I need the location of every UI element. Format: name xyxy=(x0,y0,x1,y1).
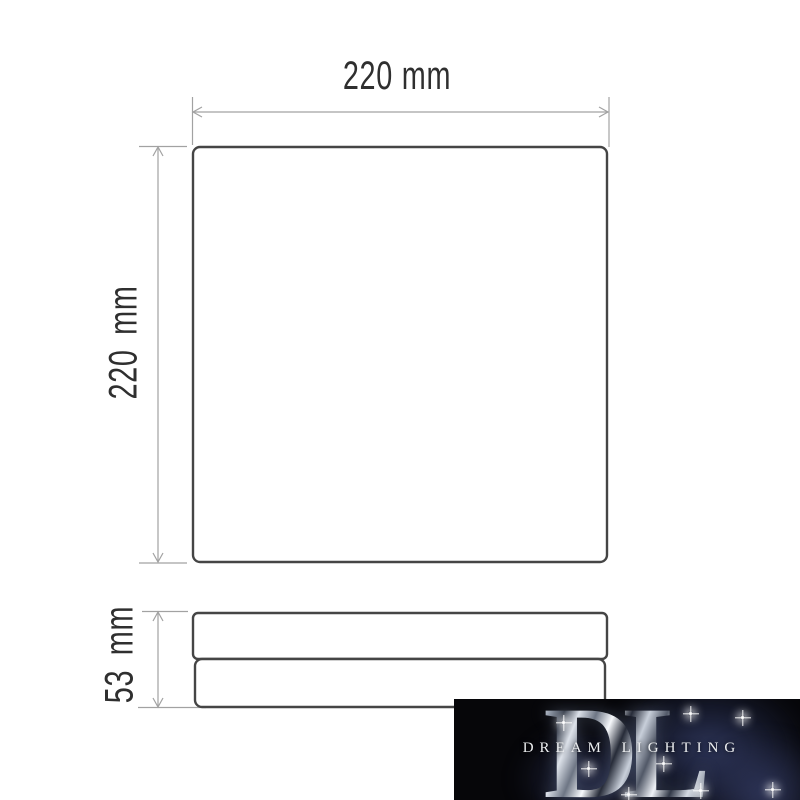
height-dimension-label: 220 mm xyxy=(104,256,145,429)
dream-lighting-logo: DL DREAM LIGHTING xyxy=(454,699,800,800)
sparkle-glint xyxy=(661,761,666,766)
width-dimension-label: 220 mm xyxy=(318,56,476,97)
sparkle-glint xyxy=(770,787,775,792)
sparkle-glint xyxy=(740,715,745,720)
product-dimension-sheet: 220 mm 220 mm 53 mm DL DREAM LIGHTING xyxy=(0,0,800,800)
top-view-panel xyxy=(193,147,607,562)
logo-brand-name: DREAM LIGHTING xyxy=(464,740,800,757)
sparkle-glint xyxy=(688,711,693,716)
sparkle-glint xyxy=(561,720,566,725)
depth-dimension-label: 53 mm xyxy=(100,568,141,741)
product-outlines-group xyxy=(193,147,607,707)
sparkle-glint xyxy=(626,792,631,797)
sparkle-glint xyxy=(698,788,703,793)
sparkle-glint xyxy=(586,766,591,771)
side-view-frame xyxy=(193,613,607,659)
